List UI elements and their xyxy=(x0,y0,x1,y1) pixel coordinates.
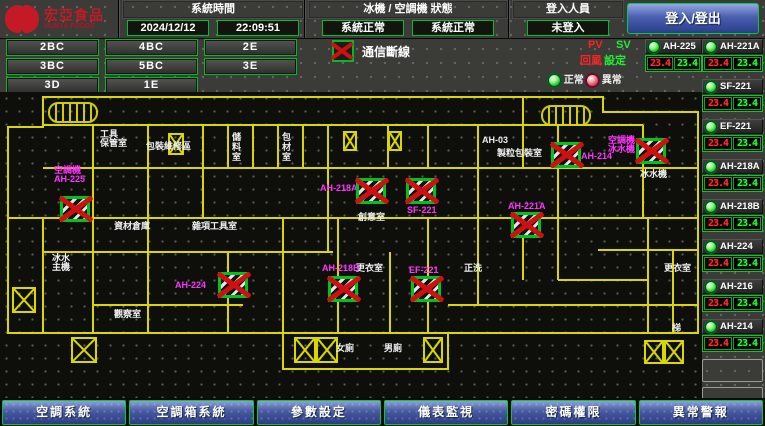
unit-name: SF-221 xyxy=(720,81,751,92)
unit-values: 23.423.4 xyxy=(702,175,763,192)
floor-button-3BC[interactable]: 3BC xyxy=(6,58,99,75)
floor-button-5BC[interactable]: 5BC xyxy=(105,58,198,75)
floor-button-4BC[interactable]: 4BC xyxy=(105,39,198,56)
pv-value: 23.4 xyxy=(647,57,673,70)
nav-button-空調箱系統[interactable]: 空調箱系統 xyxy=(129,400,253,425)
floor-button-2E[interactable]: 2E xyxy=(204,39,297,56)
stairwell-mark-icon xyxy=(423,337,443,363)
logo-subtitle: HUNYA FOODS xyxy=(44,23,104,31)
unit-values: 23.423.4 xyxy=(702,135,763,152)
pv-value: 23.4 xyxy=(704,217,732,230)
unit-values: 23.423.4 xyxy=(702,335,763,352)
sv-value: 23.4 xyxy=(733,257,761,270)
room-label: 女廁 xyxy=(336,344,354,353)
ahu-device-icon-冰水機[interactable] xyxy=(636,138,666,164)
unit-AH-221A: AH-221A23.423.4 xyxy=(702,39,763,72)
room-label: 儲料室 xyxy=(231,132,240,162)
unit-AH-218A: AH-218A23.423.4 xyxy=(702,159,763,192)
login-status: 未登入 xyxy=(527,20,609,36)
room-label: 男廁 xyxy=(384,344,402,353)
sv-value: 23.4 xyxy=(733,177,761,190)
logo-icon xyxy=(4,4,40,34)
floor-button-2BC[interactable]: 2BC xyxy=(6,39,99,56)
comm-loss-label: 通信斷線 xyxy=(362,43,410,60)
nav-button-空調系統[interactable]: 空調系統 xyxy=(2,400,126,425)
unit-name: AH-214 xyxy=(720,321,753,332)
unit-AH-218B: AH-218B23.423.4 xyxy=(702,199,763,232)
unit-values: 23.423.4 xyxy=(702,95,763,112)
pv-value: 23.4 xyxy=(704,57,732,70)
system-time-section: 系統時間 2024/12/12 22:09:51 xyxy=(118,0,306,38)
unit-values: 23.423.4 xyxy=(702,55,763,72)
pv-value: 23.4 xyxy=(704,137,732,150)
pv-value: 23.4 xyxy=(704,337,732,350)
device-label-EF-221: EF-221 xyxy=(409,266,439,275)
device-label-AH-218B: AH-218B xyxy=(322,264,360,273)
pv-label: PV xyxy=(588,39,603,51)
room-label: 包裝維修區 xyxy=(146,142,191,151)
status-lamp xyxy=(705,161,717,173)
room-label: 更衣室 xyxy=(664,264,691,273)
machine-status-section: 冰機 / 空調機 狀態 系統正常 系統正常 xyxy=(304,0,510,38)
system-time-label: 系統時間 xyxy=(123,1,303,18)
sv-sub-label: 設定 xyxy=(604,52,626,68)
logo-title: 宏亞食品 xyxy=(44,8,104,23)
unit-name: AH-218B xyxy=(720,201,760,212)
status-lamp xyxy=(705,241,717,253)
room-label: 製粒包裝室 xyxy=(497,149,542,158)
status-lamp xyxy=(705,81,717,93)
status-lamp xyxy=(705,281,717,293)
comm-loss-legend: 通信斷線 xyxy=(332,40,410,62)
header-bar: 宏亞食品 HUNYA FOODS 系統時間 2024/12/12 22:09:5… xyxy=(0,0,765,39)
room-label: 雜項工具室 xyxy=(192,222,237,231)
normal-label: 正常 xyxy=(564,75,584,86)
stairwell-mark-icon xyxy=(12,287,36,313)
nav-button-密碼權限[interactable]: 密碼權限 xyxy=(511,400,635,425)
date-display: 2024/12/12 xyxy=(127,20,209,36)
device-label-AH-225: 空調機 AH-225 xyxy=(54,166,85,184)
stairwell-mark-icon xyxy=(294,337,316,363)
normal-lamp-legend: 正常 xyxy=(548,71,584,87)
pv-sub-label: 回風 xyxy=(580,52,602,68)
login-logout-button[interactable]: 登入/登出 xyxy=(627,3,759,34)
unit-name: AH-225 xyxy=(663,41,696,52)
nav-bar: 空調系統空調箱系統參數設定儀表監視密碼權限異常警報 xyxy=(0,398,765,426)
unit-name-plate[interactable]: SF-221 xyxy=(702,79,763,94)
abnormal-lamp-legend: 異常 xyxy=(586,71,622,87)
unit-name: AH-218A xyxy=(720,161,760,172)
machine-status-label: 冰機 / 空調機 狀態 xyxy=(309,1,507,18)
chiller-status: 系統正常 xyxy=(322,20,404,36)
sv-value: 23.4 xyxy=(674,57,700,70)
room-label: 冰水 主機 xyxy=(52,254,70,272)
staircase-icon xyxy=(541,105,591,126)
ahu-device-icon-AH-224[interactable] xyxy=(218,272,248,298)
unit-name: AH-216 xyxy=(720,281,753,292)
device-label-AH-224: AH-224 xyxy=(175,281,206,290)
unit-name-plate[interactable]: AH-218A xyxy=(702,159,763,174)
room-label: 正洗 xyxy=(464,264,482,273)
device-label-SF-221: SF-221 xyxy=(407,206,437,215)
comm-loss-icon xyxy=(332,40,354,62)
unit-AH-216: AH-21623.423.4 xyxy=(702,279,763,312)
ahu-device-icon-AH-218B[interactable] xyxy=(328,276,358,302)
unit-name: AH-221A xyxy=(720,41,760,52)
empty-unit-slot xyxy=(702,359,763,382)
ahu-device-icon-AH-218A[interactable] xyxy=(356,178,386,204)
abnormal-label: 異常 xyxy=(602,75,622,86)
ahu-device-icon-SF-221[interactable] xyxy=(406,178,436,204)
unit-name: EF-221 xyxy=(720,121,751,132)
nav-button-異常警報[interactable]: 異常警報 xyxy=(639,400,763,425)
unit-values: 23.423.4 xyxy=(702,215,763,232)
scada-screen: 宏亞食品 HUNYA FOODS 系統時間 2024/12/12 22:09:5… xyxy=(0,0,765,426)
nav-button-儀表監視[interactable]: 儀表監視 xyxy=(384,400,508,425)
unit-name-plate[interactable]: AH-221A xyxy=(702,39,763,54)
room-label: 梯 xyxy=(672,324,681,333)
stairwell-mark-icon xyxy=(316,337,338,363)
unit-name-plate[interactable]: AH-224 xyxy=(702,239,763,254)
sv-value: 23.4 xyxy=(733,97,761,110)
nav-button-參數設定[interactable]: 參數設定 xyxy=(257,400,381,425)
room-label: 更衣室 xyxy=(356,264,383,273)
unit-AH-224: AH-22423.423.4 xyxy=(702,239,763,272)
sv-value: 23.4 xyxy=(733,217,761,230)
stairwell-mark-icon xyxy=(644,340,664,364)
unit-values: 23.4 23.4 xyxy=(645,55,702,72)
staircase-icon xyxy=(48,102,98,123)
room-label: 工具 保管室 xyxy=(100,130,127,148)
unit-SF-221: SF-22123.423.4 xyxy=(702,79,763,112)
stairwell-mark-icon xyxy=(71,337,97,363)
unit-name-plate[interactable]: EF-221 xyxy=(702,119,763,134)
status-lamp xyxy=(705,321,717,333)
unit-values: 23.423.4 xyxy=(702,255,763,272)
normal-lamp-icon xyxy=(548,74,561,87)
room-label: 包材室 xyxy=(281,132,290,162)
ahu-device-icon-AH-225[interactable] xyxy=(60,196,90,222)
unit-values: 23.423.4 xyxy=(702,295,763,312)
sv-value: 23.4 xyxy=(733,337,761,350)
status-lamp xyxy=(705,201,717,213)
device-label-AH-221A: AH-221A xyxy=(508,202,546,211)
time-display: 22:09:51 xyxy=(217,20,299,36)
device-label-冰水機: 空調機 冰水機 xyxy=(608,136,635,154)
device-label-AH-218A: AH-218A xyxy=(320,184,358,193)
unit-name-plate[interactable]: AH-218B xyxy=(702,199,763,214)
abnormal-lamp-icon xyxy=(586,74,599,87)
stairwell-mark-icon xyxy=(388,131,402,151)
stairwell-mark-icon xyxy=(664,340,684,364)
room-label: 創意室 xyxy=(358,213,385,222)
ahu-device-icon-AH-214[interactable] xyxy=(551,142,581,168)
stairwell-mark-icon xyxy=(343,131,357,151)
sv-label: SV xyxy=(616,39,631,51)
floor-plan-map: 工具 保管室包裝維修區儲料室包材室AH-03製粒包裝室冰水機創意室資材倉庫雜項工… xyxy=(0,92,702,398)
floor-selector: 2BC4BC2E3BC5BC3E3D1E xyxy=(6,39,297,94)
ahu-device-icon-EF-221[interactable] xyxy=(411,276,441,302)
login-section: 登入人員 未登入 xyxy=(508,0,626,38)
floor-button-3E[interactable]: 3E xyxy=(204,58,297,75)
pv-value: 23.4 xyxy=(704,97,732,110)
sv-value: 23.4 xyxy=(733,57,761,70)
room-label: 資材倉庫 xyxy=(114,222,150,231)
ahu-status: 系統正常 xyxy=(412,20,494,36)
sv-value: 23.4 xyxy=(733,137,761,150)
unit-EF-221: EF-22123.423.4 xyxy=(702,119,763,152)
ahu-device-icon-AH-221A[interactable] xyxy=(511,212,541,238)
status-lamp xyxy=(705,41,717,53)
unit-AH-214: AH-21423.423.4 xyxy=(702,319,763,352)
room-label: 觀察室 xyxy=(114,310,141,319)
status-lamp xyxy=(705,121,717,133)
unit-name-plate[interactable]: AH-216 xyxy=(702,279,763,294)
pv-value: 23.4 xyxy=(704,297,732,310)
unit-AH-225-block: AH-225 23.4 23.4 xyxy=(645,39,702,72)
status-lamp xyxy=(648,41,660,53)
login-label: 登入人員 xyxy=(513,1,623,18)
sv-value: 23.4 xyxy=(733,297,761,310)
logo: 宏亞食品 HUNYA FOODS xyxy=(4,3,116,35)
pv-value: 23.4 xyxy=(704,257,732,270)
unit-list: AH-221A23.423.4SF-22123.423.4EF-22123.42… xyxy=(702,39,763,410)
room-label: 冰水機 xyxy=(640,170,667,179)
unit-name: AH-224 xyxy=(720,241,753,252)
room-label: AH-03 xyxy=(482,136,508,145)
pv-value: 23.4 xyxy=(704,177,732,190)
unit-name-plate[interactable]: AH-225 xyxy=(645,39,702,54)
unit-name-plate[interactable]: AH-214 xyxy=(702,319,763,334)
